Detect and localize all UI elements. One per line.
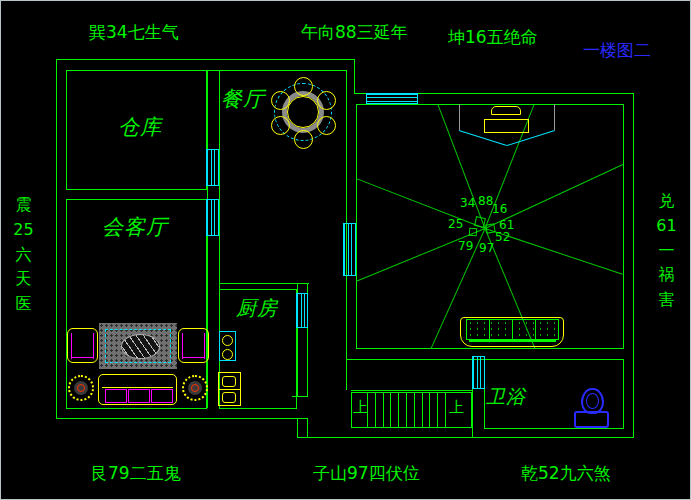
sink-basin bbox=[222, 392, 236, 403]
compass-label-bottom-right: 乾52九六煞 bbox=[521, 462, 611, 485]
wall bbox=[56, 418, 308, 419]
dining-chair bbox=[271, 91, 290, 110]
armchair-seat bbox=[72, 357, 93, 358]
fengshui-number: 16 bbox=[492, 203, 507, 215]
sofa-seat bbox=[128, 389, 150, 403]
alcove-seat-back bbox=[491, 106, 521, 115]
armchair-seat bbox=[183, 357, 204, 358]
wall bbox=[633, 93, 634, 438]
alcove-wall bbox=[554, 104, 555, 130]
stair-up-label: 上 bbox=[353, 400, 368, 415]
compass-label-top-center: 午向88三延年 bbox=[301, 21, 408, 44]
compass-label-bottom-left: 艮79二五鬼 bbox=[91, 462, 181, 485]
wall bbox=[307, 418, 308, 437]
wall bbox=[219, 70, 220, 290]
sheet-title: 一楼图二 bbox=[583, 39, 651, 62]
dining-chair bbox=[317, 116, 336, 135]
kitchen-sink bbox=[218, 372, 241, 406]
stove-burner bbox=[222, 335, 233, 346]
armchair-arm bbox=[71, 333, 72, 359]
window bbox=[296, 293, 308, 328]
fengshui-number: 52 bbox=[495, 231, 510, 243]
compass-label-top-right: 坤16五绝命 bbox=[448, 26, 538, 49]
window bbox=[206, 199, 219, 236]
window bbox=[472, 356, 485, 389]
wall bbox=[297, 418, 298, 437]
dining-chair bbox=[294, 77, 313, 96]
stove-burner bbox=[222, 349, 233, 360]
armchair bbox=[67, 328, 98, 363]
fengshui-number: 79 bbox=[458, 240, 473, 252]
cabinet-base bbox=[469, 339, 556, 342]
cabinet-divider bbox=[489, 319, 490, 340]
sofa-seat bbox=[151, 389, 173, 403]
stool-center bbox=[191, 384, 199, 392]
alcove-wall bbox=[459, 104, 460, 130]
window bbox=[366, 93, 418, 104]
wall bbox=[219, 283, 309, 284]
fengshui-number: 25 bbox=[448, 218, 463, 230]
armchair bbox=[178, 328, 209, 363]
sofa-seat bbox=[105, 389, 127, 403]
armchair-arm bbox=[182, 333, 183, 359]
cabinet-divider bbox=[512, 319, 513, 340]
compass-label-right: 兑61一祸害 bbox=[656, 189, 677, 313]
wall bbox=[207, 70, 347, 71]
coffee-table bbox=[121, 334, 160, 359]
room-label-living: 会客厅 bbox=[102, 213, 168, 241]
dining-chair bbox=[271, 116, 290, 135]
fengshui-center-mark bbox=[474, 216, 486, 228]
toilet-seat bbox=[586, 393, 599, 409]
compass-label-bottom-center: 子山97四伏位 bbox=[313, 462, 420, 485]
fengshui-center-mark bbox=[469, 228, 478, 237]
sofa-back bbox=[102, 387, 173, 388]
fengshui-number: 34 bbox=[460, 197, 475, 209]
sink-divider bbox=[219, 389, 240, 390]
cabinet-divider bbox=[535, 319, 536, 340]
stair-up-label: 上 bbox=[449, 400, 464, 415]
sink-basin bbox=[222, 376, 236, 387]
side-stool bbox=[68, 375, 94, 401]
room-label-dining: 餐厅 bbox=[221, 85, 265, 113]
stair-rail bbox=[351, 390, 472, 391]
floor-plan-canvas[interactable]: 巽34七生气 午向88三延年 坤16五绝命 一楼图二 震25六天医 兑61一祸害… bbox=[0, 0, 691, 500]
stove bbox=[219, 331, 236, 361]
wall bbox=[354, 59, 355, 94]
stair-tread bbox=[445, 392, 446, 428]
compass-label-left: 震25六天医 bbox=[13, 193, 34, 317]
room-label-kitchen: 厨房 bbox=[236, 295, 278, 322]
room-label-warehouse: 仓库 bbox=[118, 113, 162, 141]
dining-chair bbox=[294, 130, 313, 149]
side-stool bbox=[182, 375, 208, 401]
armchair-arm bbox=[204, 333, 205, 359]
compass-label-top-left: 巽34七生气 bbox=[89, 21, 179, 44]
room-label-bathroom: 卫浴 bbox=[486, 384, 526, 410]
window bbox=[206, 149, 219, 186]
dining-chair bbox=[317, 91, 336, 110]
alcove-seat-base bbox=[484, 119, 529, 133]
wall bbox=[56, 59, 57, 419]
wall bbox=[56, 59, 355, 60]
fengshui-number: 97 bbox=[479, 242, 494, 254]
fengshui-number: 88 bbox=[478, 195, 493, 207]
wall bbox=[297, 437, 634, 438]
window bbox=[343, 223, 356, 276]
sofa bbox=[98, 374, 177, 405]
stair-treads bbox=[367, 392, 446, 428]
dining-table-top bbox=[287, 96, 319, 128]
stool-center bbox=[77, 384, 85, 392]
armchair-arm bbox=[93, 333, 94, 359]
